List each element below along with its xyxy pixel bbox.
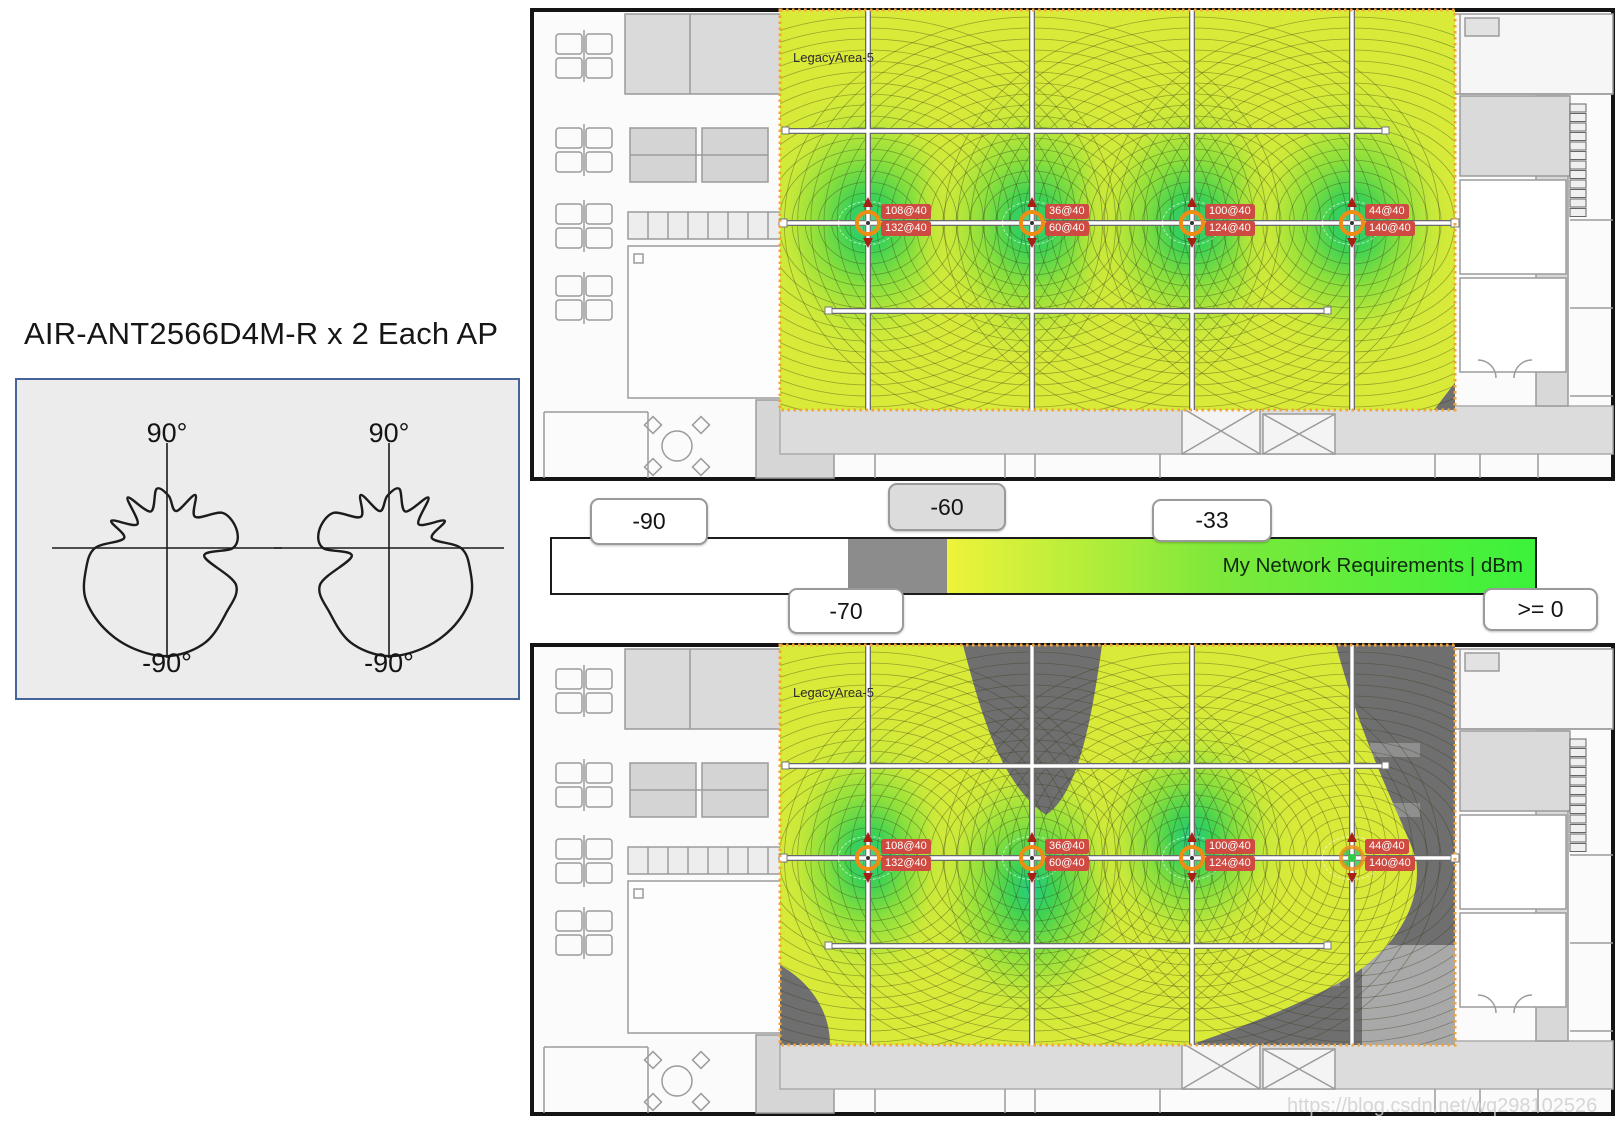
legend-handle-minus60[interactable]: -60 — [888, 483, 1006, 531]
legend-gray-zone-segment — [848, 539, 947, 593]
legend-handle-gte-zero[interactable]: >= 0 — [1483, 588, 1598, 631]
ap-channel-badge[interactable]: 132@40 — [881, 856, 931, 871]
ap-arrow-down-icon — [1347, 238, 1357, 248]
ap-ring-icon — [855, 845, 881, 871]
ap-channel-badge[interactable]: 140@40 — [1365, 856, 1415, 871]
ap-ring-icon — [1179, 210, 1205, 236]
ap-arrow-up-icon — [1347, 832, 1357, 842]
ap-ring-icon — [1019, 210, 1045, 236]
antenna-pattern-panel: 90° -90° 90° -90° — [15, 378, 520, 700]
antenna1-top-angle-label: 90° — [147, 418, 188, 449]
ap-channel-badge[interactable]: 36@40 — [1045, 839, 1089, 854]
area-label-top: LegacyArea-5 — [793, 50, 874, 65]
heatmap-top-svg — [530, 8, 1615, 481]
ap-arrow-up-icon — [1027, 832, 1037, 842]
ap-arrow-down-icon — [863, 238, 873, 248]
ap-ring-icon — [1019, 845, 1045, 871]
ap-arrow-up-icon — [1187, 832, 1197, 842]
ap-arrow-down-icon — [1187, 238, 1197, 248]
antenna2-bottom-angle-label: -90° — [364, 648, 414, 679]
ap-channel-badge[interactable]: 132@40 — [881, 221, 931, 236]
antenna1-bottom-angle-label: -90° — [142, 648, 192, 679]
ap-arrow-down-icon — [1347, 873, 1357, 883]
legend-below-range-segment — [552, 539, 848, 593]
ap-channel-badge[interactable]: 124@40 — [1205, 856, 1255, 871]
legend-handle-minus90[interactable]: -90 — [590, 498, 708, 545]
area-label-bottom: LegacyArea-5 — [793, 685, 874, 700]
ap-channel-badge[interactable]: 108@40 — [881, 839, 931, 854]
ap-channel-badge[interactable]: 108@40 — [881, 204, 931, 219]
ap-arrow-down-icon — [863, 873, 873, 883]
signal-legend-bar: My Network Requirements | dBm — [550, 537, 1537, 595]
ap-channel-badge[interactable]: 140@40 — [1365, 221, 1415, 236]
legend-handle-minus33[interactable]: -33 — [1152, 499, 1272, 542]
legend-handle-minus70[interactable]: -70 — [788, 588, 904, 634]
ap-arrow-up-icon — [1187, 197, 1197, 207]
ap-arrow-up-icon — [863, 832, 873, 842]
legend-gradient-segment: My Network Requirements | dBm — [947, 539, 1535, 593]
ap-arrow-up-icon — [863, 197, 873, 207]
ap-ring-icon — [1339, 210, 1365, 236]
ap-ring-icon — [1179, 845, 1205, 871]
ap-channel-badge[interactable]: 100@40 — [1205, 204, 1255, 219]
ap-channel-badge[interactable]: 60@40 — [1045, 221, 1089, 236]
heatmap-bottom-svg — [530, 643, 1615, 1116]
watermark-url: https://blog.csdn.net/wq298102526 — [1287, 1095, 1597, 1118]
antenna2-top-angle-label: 90° — [369, 418, 410, 449]
ap-channel-badge[interactable]: 100@40 — [1205, 839, 1255, 854]
antenna-pattern-diagram — [17, 380, 518, 698]
ap-arrow-down-icon — [1187, 873, 1197, 883]
legend-title: My Network Requirements | dBm — [1223, 554, 1523, 578]
figure-title: AIR-ANT2566D4M-R x 2 Each AP — [24, 316, 526, 352]
ap-arrow-down-icon — [1027, 238, 1037, 248]
ap-channel-badge[interactable]: 60@40 — [1045, 856, 1089, 871]
ap-channel-badge[interactable]: 44@40 — [1365, 839, 1409, 854]
ap-channel-badge[interactable]: 124@40 — [1205, 221, 1255, 236]
ap-arrow-down-icon — [1027, 873, 1037, 883]
heatmap-top-floorplan: LegacyArea-5 108@40132@40 36@4060@40 100… — [530, 8, 1615, 481]
ap-channel-badge[interactable]: 44@40 — [1365, 204, 1409, 219]
ap-ring-icon — [1339, 845, 1365, 871]
ap-arrow-up-icon — [1347, 197, 1357, 207]
heatmap-bottom-floorplan: LegacyArea-5 108@40132@40 36@4060@40 100… — [530, 643, 1615, 1116]
ap-arrow-up-icon — [1027, 197, 1037, 207]
figure-stage: AIR-ANT2566D4M-R x 2 Each AP 90° -90° 90… — [0, 0, 1620, 1127]
ap-ring-icon — [855, 210, 881, 236]
ap-channel-badge[interactable]: 36@40 — [1045, 204, 1089, 219]
